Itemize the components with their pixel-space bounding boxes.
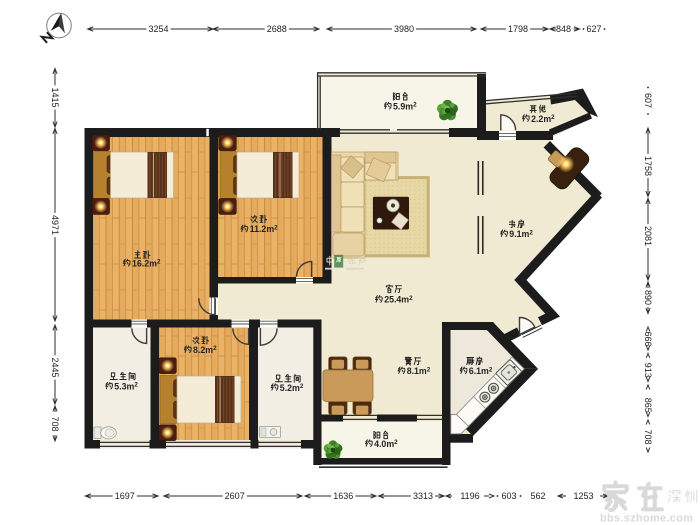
svg-text:603: 603	[501, 491, 516, 501]
svg-text:627: 627	[586, 24, 601, 34]
svg-text:1196: 1196	[460, 491, 479, 501]
svg-text:4971: 4971	[50, 215, 60, 235]
svg-text:3254: 3254	[148, 24, 168, 34]
svg-text:25.4m2: 25.4m2	[384, 295, 413, 305]
svg-text:1758: 1758	[643, 156, 653, 176]
svg-text:2607: 2607	[225, 491, 245, 501]
svg-text:bbs.szhome.com: bbs.szhome.com	[600, 513, 693, 525]
svg-text:708: 708	[643, 429, 653, 444]
svg-text:562: 562	[530, 491, 545, 501]
svg-text:2688: 2688	[267, 24, 287, 34]
svg-text:3980: 3980	[394, 24, 414, 34]
svg-text:666: 666	[643, 331, 653, 346]
svg-text:1415: 1415	[50, 87, 60, 107]
svg-text:1636: 1636	[333, 491, 353, 501]
svg-text:11.2m2: 11.2m2	[250, 224, 278, 234]
svg-text:1697: 1697	[115, 491, 135, 501]
svg-text:3313: 3313	[413, 491, 433, 501]
svg-text:1253: 1253	[573, 491, 593, 501]
svg-text:16.2m2: 16.2m2	[132, 258, 161, 268]
svg-text:913: 913	[643, 363, 653, 378]
svg-text:2081: 2081	[643, 226, 653, 246]
svg-text:865: 865	[643, 398, 653, 413]
svg-text:890: 890	[643, 290, 653, 305]
svg-text:2445: 2445	[50, 357, 60, 377]
svg-text:607: 607	[643, 93, 653, 108]
svg-text:848: 848	[556, 24, 571, 34]
svg-text:708: 708	[50, 416, 60, 431]
svg-text:1798: 1798	[508, 24, 528, 34]
